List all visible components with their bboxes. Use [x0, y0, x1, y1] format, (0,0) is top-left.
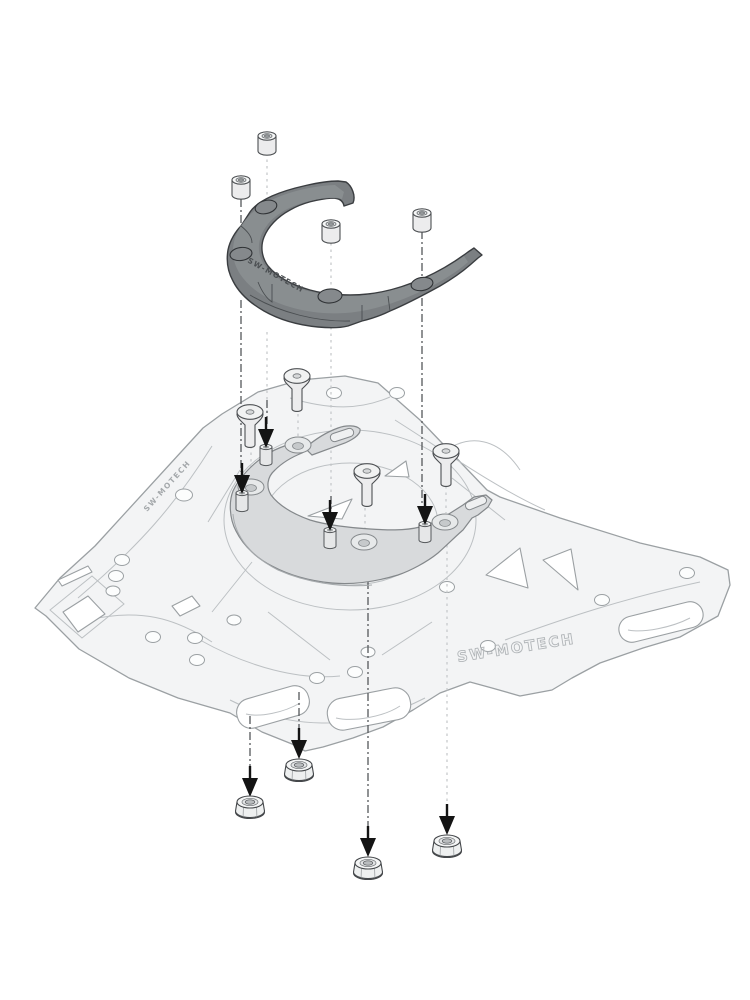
flange-nuts	[236, 759, 462, 880]
spacer	[413, 209, 431, 232]
exploded-assembly-diagram: SW-MOTECH SW-MOTECH	[0, 0, 750, 1000]
flange-nut	[433, 835, 462, 858]
flange-nut	[354, 857, 383, 880]
spacer	[258, 132, 276, 155]
down-arrow-marker	[242, 766, 258, 797]
flange-nut	[236, 796, 265, 819]
spacer	[232, 176, 250, 199]
insert-arrows-bottom	[242, 728, 455, 857]
flange-nut	[285, 759, 314, 782]
tank-ring: SW-MOTECH	[227, 181, 482, 328]
spacer	[322, 220, 340, 243]
down-arrow-marker	[360, 826, 376, 857]
diagram-canvas: SW-MOTECH SW-MOTECH	[0, 0, 750, 1000]
down-arrow-marker	[439, 804, 455, 835]
